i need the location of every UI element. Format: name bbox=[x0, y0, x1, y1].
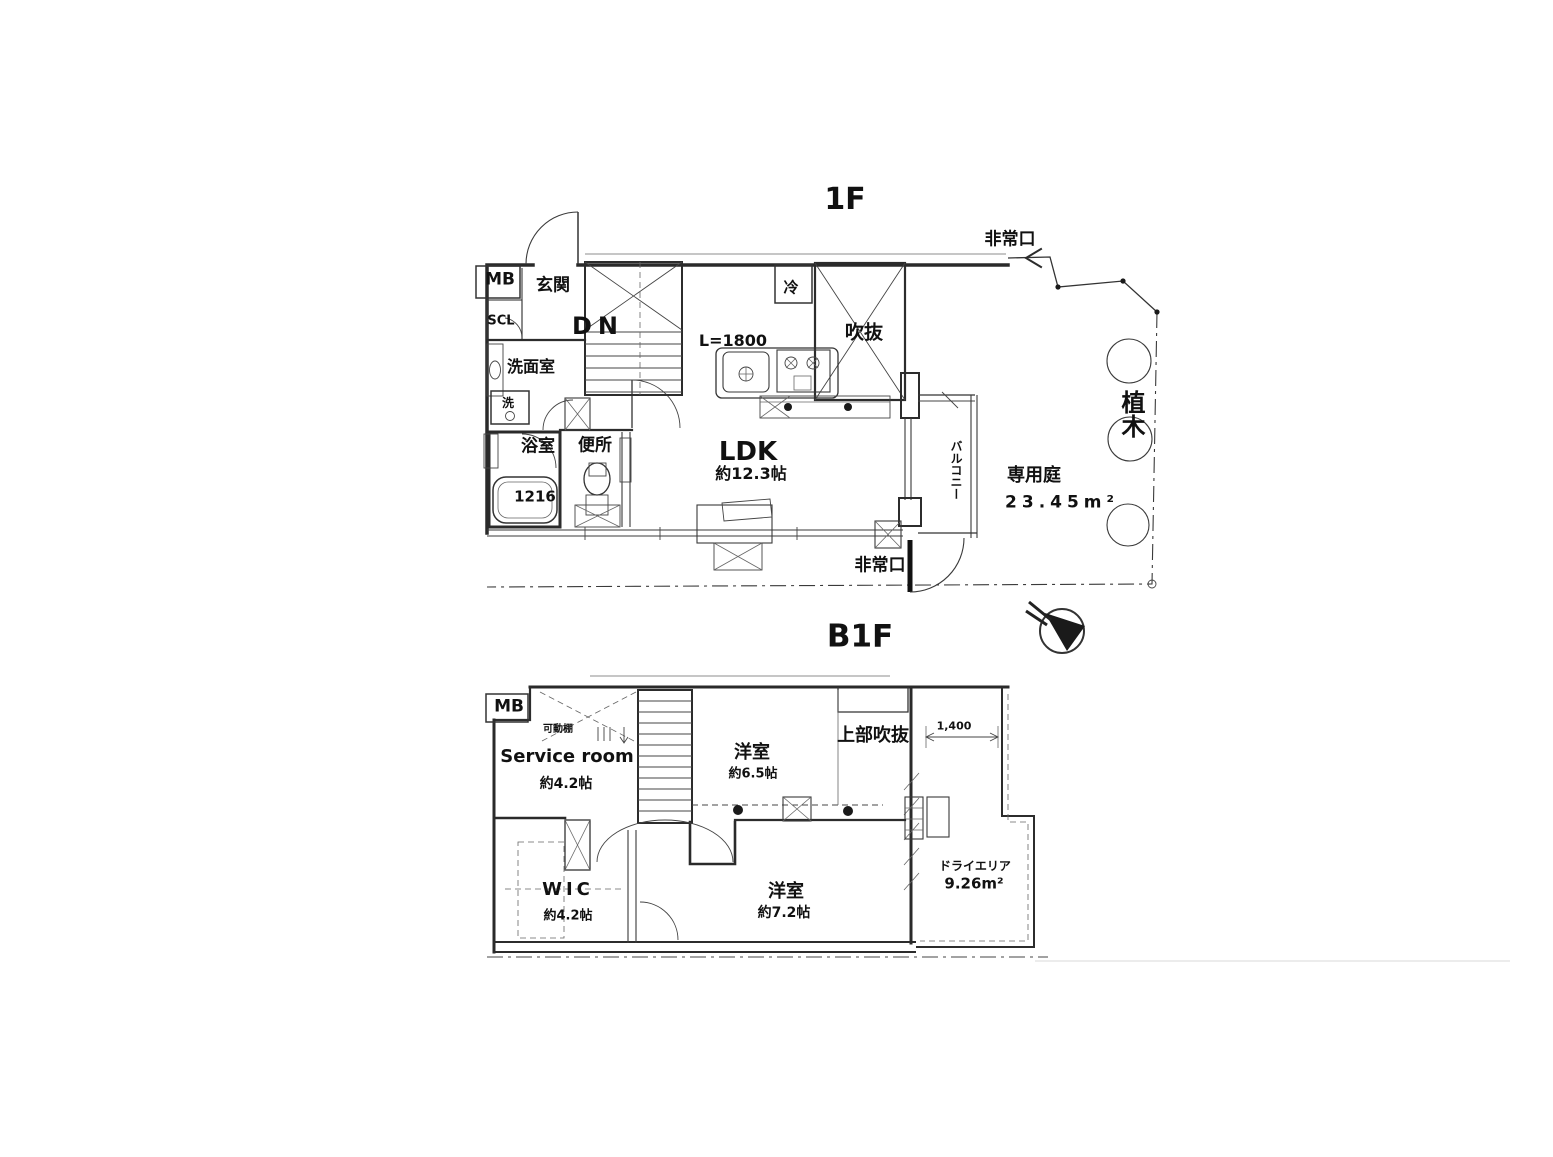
fence-line bbox=[1008, 257, 1157, 312]
door-swing-arc bbox=[526, 212, 578, 264]
floor-b1f-plan bbox=[486, 676, 1510, 961]
dimension-1400-label: 1,400 bbox=[937, 721, 972, 732]
floorplan-svg bbox=[0, 0, 1553, 1157]
post-dot bbox=[843, 806, 853, 816]
door-swing-arc bbox=[640, 902, 678, 940]
kitchen-counter bbox=[716, 348, 838, 398]
wic-size-label: 約4.2帖 bbox=[543, 910, 592, 923]
floor-1f-title: 1F bbox=[824, 185, 865, 215]
wic-east-wall bbox=[628, 830, 636, 943]
emergency-exit-bottom-label: 非常口 bbox=[855, 558, 906, 575]
basin-bowl bbox=[490, 361, 501, 379]
entrance-door bbox=[526, 212, 578, 264]
washbasin bbox=[487, 344, 503, 396]
ldk-table bbox=[697, 499, 772, 570]
meter-box-label-1f: MB bbox=[485, 272, 515, 289]
window-wall bbox=[905, 418, 911, 500]
table bbox=[697, 505, 772, 543]
washroom-label: 洗面室 bbox=[507, 359, 555, 375]
private-garden-label: 専用庭 bbox=[1007, 467, 1061, 485]
movable-shelf-label: 可動棚 bbox=[543, 725, 573, 735]
bedroom2-label: 洋室 bbox=[768, 883, 804, 901]
entrance-label: 玄関 bbox=[536, 278, 570, 295]
equipment-box bbox=[927, 797, 949, 837]
table-top bbox=[722, 499, 772, 521]
balcony-1f bbox=[899, 373, 977, 538]
meter-box-label-b1f: MB bbox=[494, 699, 524, 716]
stair-treads bbox=[585, 332, 682, 392]
bedroom2-size-label: 約7.2帖 bbox=[758, 906, 811, 920]
pillar bbox=[899, 498, 921, 526]
balcony-rail bbox=[971, 395, 977, 538]
toilet-label: 便所 bbox=[578, 438, 612, 455]
fence-joint bbox=[1154, 309, 1159, 314]
stairs-outline bbox=[638, 690, 692, 823]
planting-label: 植木 bbox=[1119, 390, 1143, 438]
post-dot bbox=[784, 403, 792, 411]
bathroom-label: 浴室 bbox=[521, 439, 555, 456]
window-ticks bbox=[585, 527, 797, 540]
post-dot bbox=[844, 403, 852, 411]
void-space-label-1f: 吹抜 bbox=[845, 324, 883, 343]
stair-treads bbox=[638, 701, 692, 811]
hall-closet bbox=[565, 398, 590, 430]
service-room-size-label: 約4.2帖 bbox=[540, 777, 593, 791]
shelf-ticks bbox=[598, 727, 610, 741]
door-swing-arc bbox=[632, 380, 680, 428]
ldk-label: LDK bbox=[719, 439, 777, 465]
bedroom1-partition bbox=[692, 690, 883, 821]
hatch-x bbox=[575, 505, 620, 527]
emergency-exit-top-label: 非常口 bbox=[985, 232, 1036, 249]
washer-drum bbox=[506, 412, 515, 421]
down-arrow bbox=[620, 727, 628, 743]
washing-machine-label: 洗 bbox=[502, 397, 514, 409]
dry-area-outline bbox=[917, 688, 1034, 947]
kitchen-length-label: L=1800 bbox=[699, 333, 767, 349]
corridor-alcove bbox=[690, 822, 735, 864]
balcony-label: バルコニー bbox=[950, 440, 962, 500]
burner-spokes bbox=[786, 358, 796, 368]
bedroom1-label: 洋室 bbox=[734, 744, 770, 762]
grill bbox=[794, 376, 811, 390]
burner-spokes bbox=[808, 358, 818, 368]
compass-icon bbox=[1026, 602, 1085, 653]
hatch-x bbox=[783, 797, 811, 821]
private-garden-area-label: 23.45m² bbox=[1005, 495, 1119, 512]
ldk-size-label: 約12.3帖 bbox=[715, 466, 786, 482]
closet-x bbox=[565, 820, 590, 870]
recess bbox=[838, 687, 908, 712]
fence-joint bbox=[1055, 284, 1060, 289]
fence-joint bbox=[1120, 278, 1125, 283]
upper-void-label: 上部吹抜 bbox=[837, 727, 909, 745]
stairs-down-label: DN bbox=[572, 314, 624, 338]
dry-area-wall bbox=[917, 688, 1034, 947]
pillar bbox=[901, 373, 919, 418]
planting-circles bbox=[1107, 339, 1152, 546]
hall-ldk-door bbox=[632, 380, 680, 428]
corridor-walls bbox=[597, 820, 905, 943]
b1f-closet bbox=[565, 820, 590, 870]
chair-x bbox=[714, 543, 762, 570]
hatch-x bbox=[875, 521, 901, 548]
service-room-label: Service room bbox=[500, 748, 633, 766]
shoe-closet-label: SCL bbox=[487, 315, 514, 328]
floor-b1f-title: B1F bbox=[827, 622, 893, 653]
bottom-wall bbox=[494, 942, 915, 952]
dry-area-label: ドライエリア bbox=[939, 860, 1011, 872]
tree-circle bbox=[1107, 339, 1151, 383]
bedroom1-size-label: 約6.5帖 bbox=[728, 768, 777, 781]
wic-label: WIC bbox=[542, 881, 594, 899]
door-swing-arc bbox=[910, 538, 964, 592]
closet-x bbox=[565, 398, 590, 430]
refrigerator-label: 冷 bbox=[783, 281, 798, 296]
dry-area-size-label: 9.26m² bbox=[944, 877, 1003, 892]
floor-1f-plan bbox=[476, 212, 1160, 592]
post-dot bbox=[733, 805, 743, 815]
floorplan-canvas: 1F 非常口 MB 玄関 SCL DN 洗面室 洗 浴室 1216 便所 冷 吹… bbox=[0, 0, 1553, 1157]
site-boundary-1f bbox=[487, 249, 1160, 588]
stove bbox=[777, 350, 830, 392]
door-swing-arc bbox=[597, 820, 733, 862]
bathtub-size-label: 1216 bbox=[514, 490, 556, 505]
outer-walls-b1f bbox=[486, 676, 1510, 961]
